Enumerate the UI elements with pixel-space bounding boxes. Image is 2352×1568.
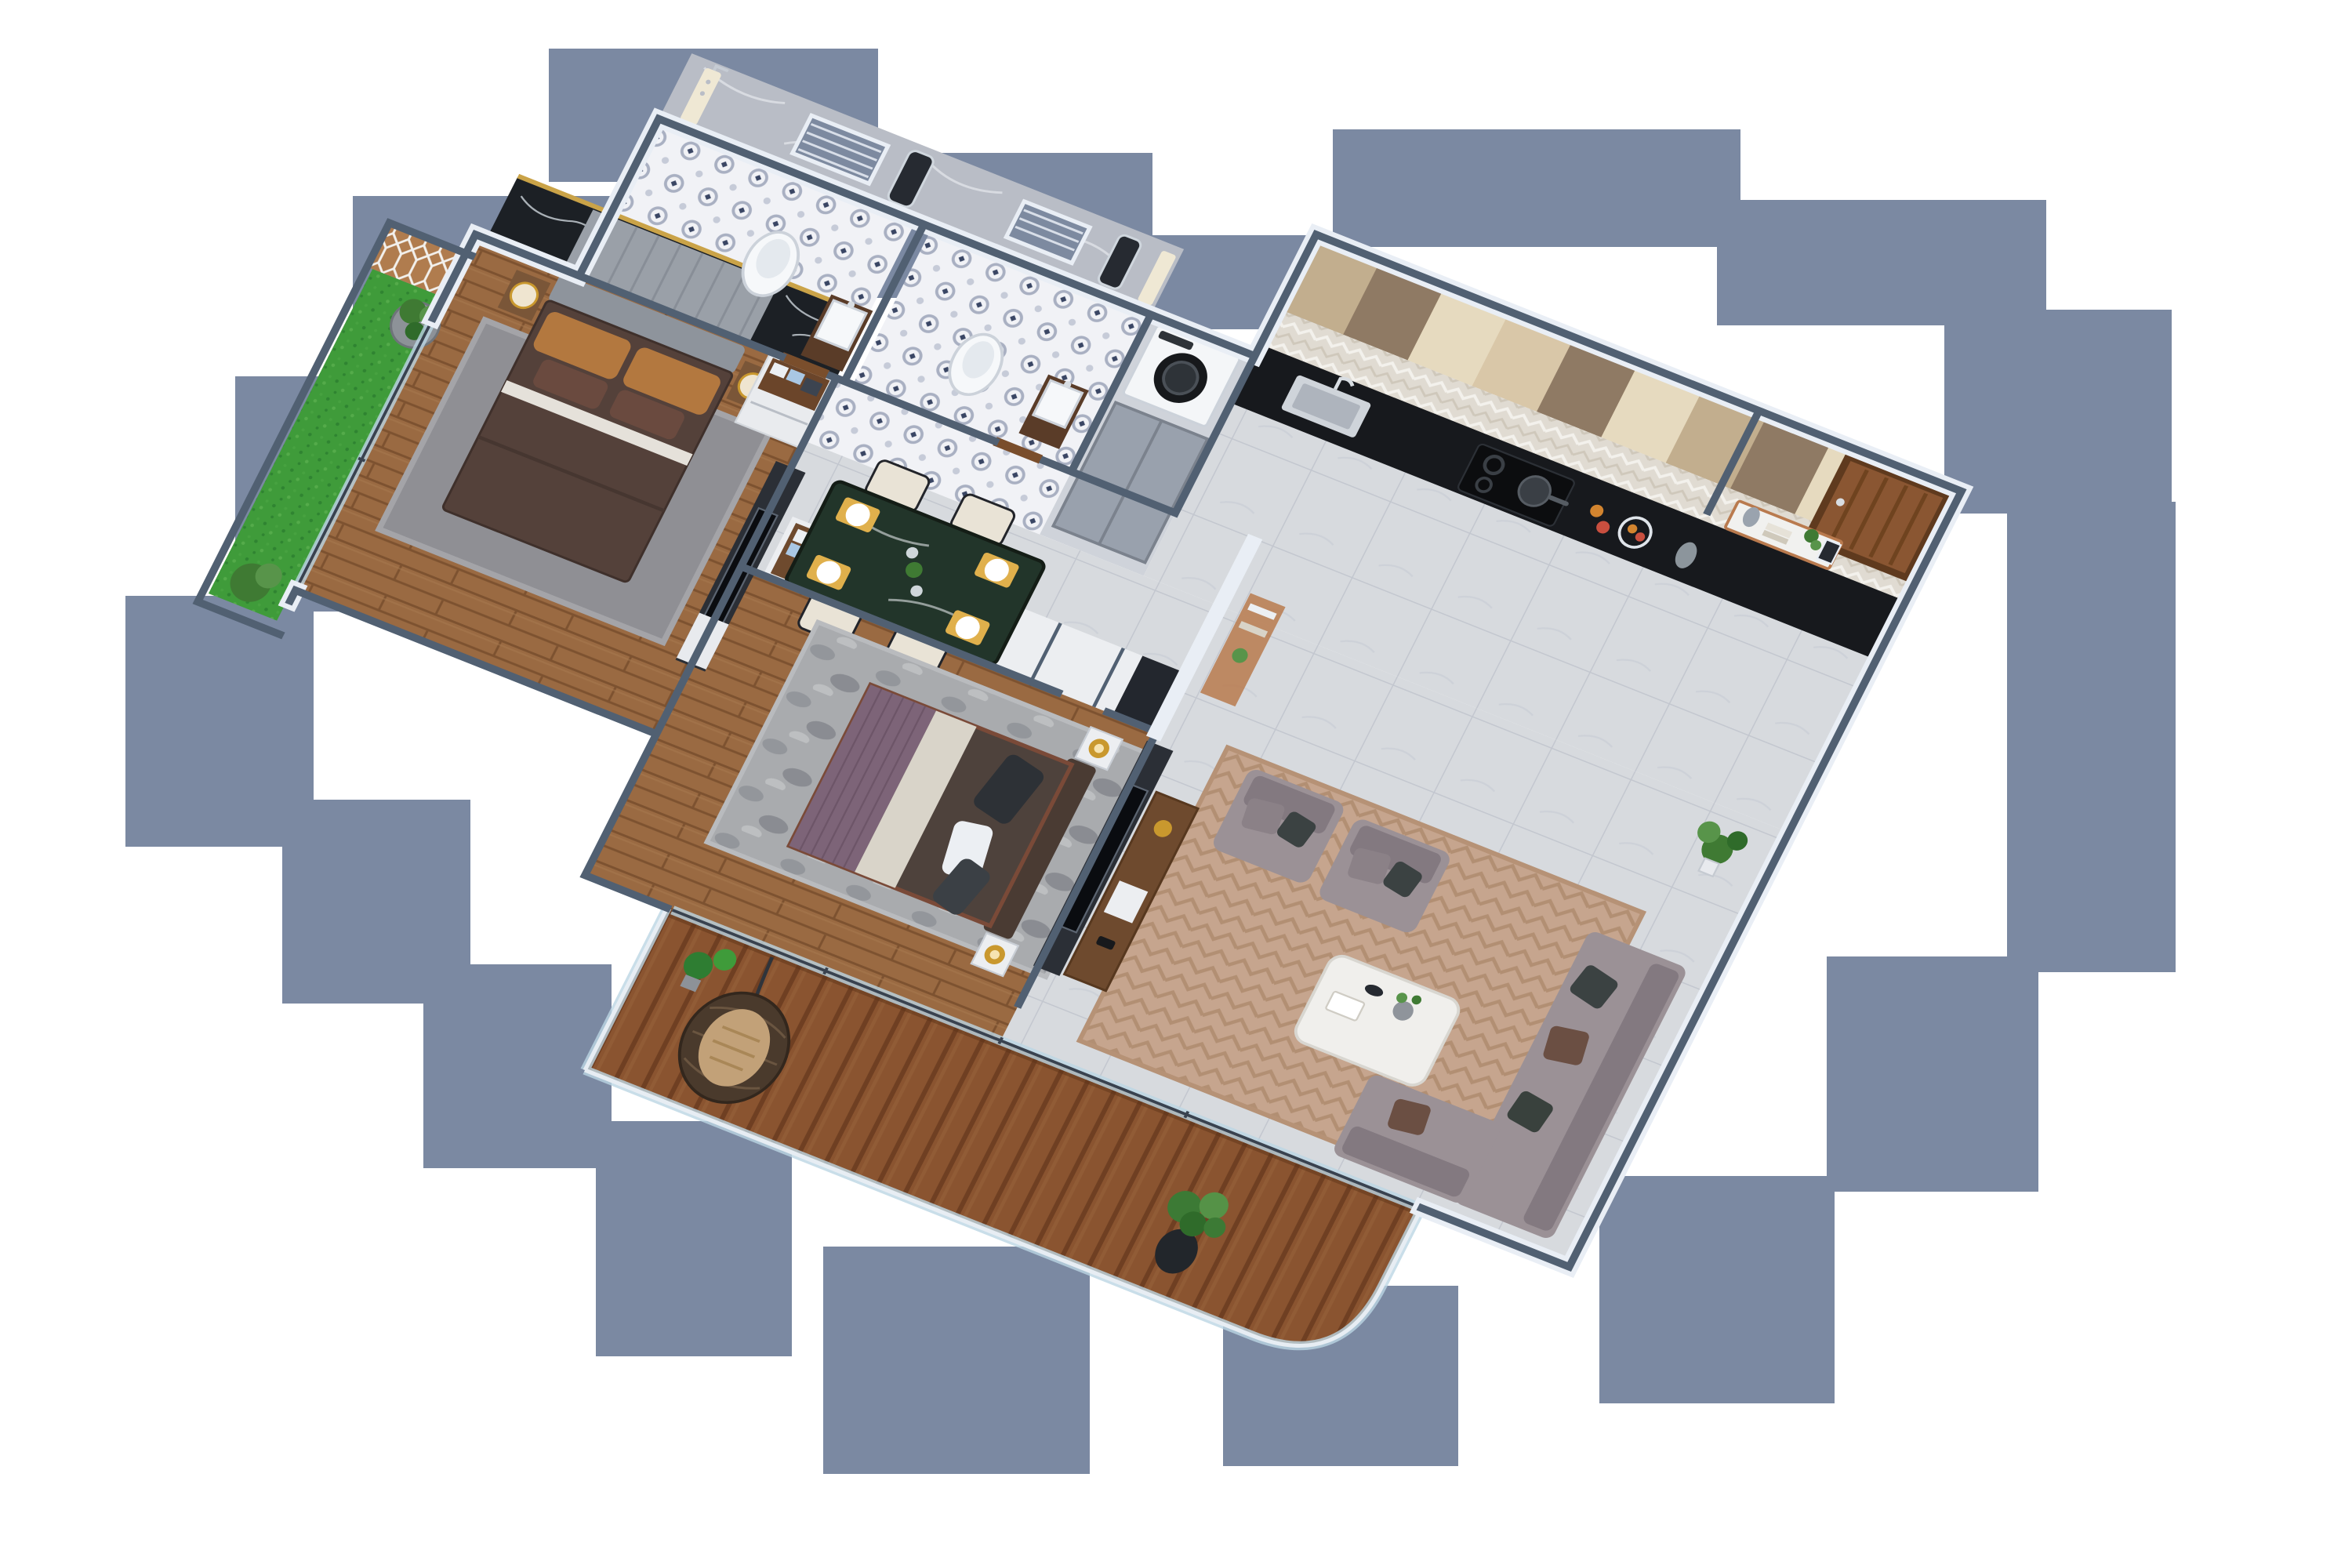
shadow-step xyxy=(823,1247,1090,1474)
shadow-step xyxy=(1944,310,2172,514)
shadow-step xyxy=(1717,200,2046,325)
shadow-step xyxy=(1599,1176,1835,1403)
floor-plan-svg xyxy=(0,0,2352,1568)
shadow-step xyxy=(2007,502,2176,972)
floor-plan-render xyxy=(0,0,2352,1568)
shadow-step xyxy=(1333,129,1740,247)
shadow-step xyxy=(596,1121,792,1356)
shadow-step xyxy=(125,596,314,847)
shadow-step xyxy=(1827,956,2038,1192)
